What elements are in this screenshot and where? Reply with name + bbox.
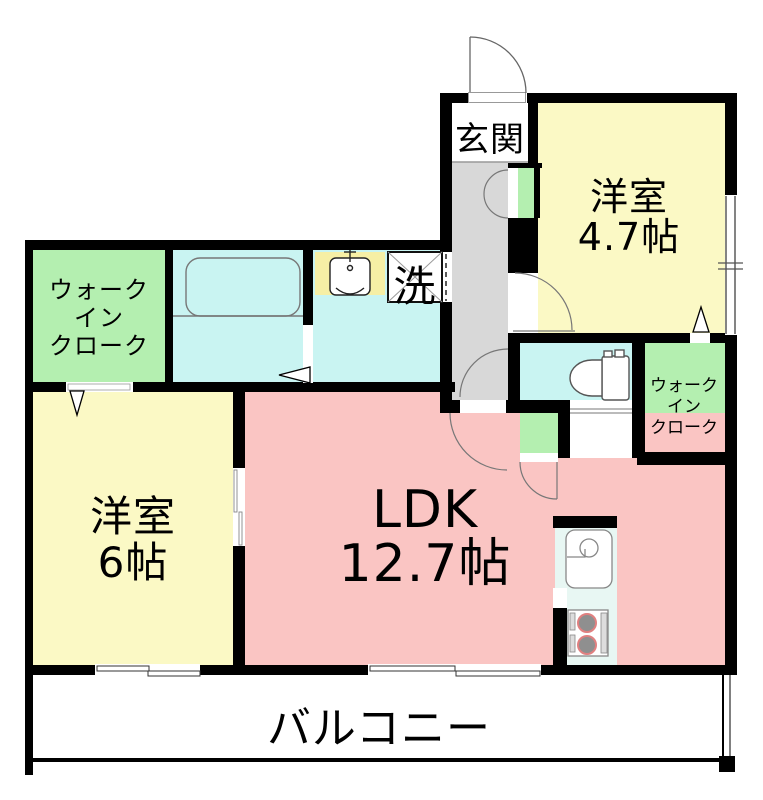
door-opening-wic-left bbox=[66, 382, 133, 392]
wall-right-upper bbox=[725, 93, 737, 195]
room-hallway bbox=[452, 162, 508, 405]
entrance-door-arc bbox=[470, 37, 526, 93]
room-toilet bbox=[520, 343, 632, 400]
label-room6-name: 洋室 bbox=[33, 494, 233, 540]
label-room47: 洋室 4.7帖 bbox=[538, 177, 720, 257]
window-ldk bbox=[368, 664, 541, 676]
washbasin-cabinet bbox=[315, 252, 385, 295]
wall-top-door-stub bbox=[440, 93, 468, 103]
wall-left-outer bbox=[25, 240, 33, 775]
wall-hall-room47 bbox=[508, 218, 538, 273]
label-balcony: バルコニー bbox=[33, 692, 725, 756]
label-ldk: LDK 12.7帖 bbox=[245, 483, 605, 591]
label-genkan: 玄関 bbox=[452, 112, 528, 161]
sliding-door-room6 bbox=[233, 468, 245, 546]
balcony-bottom-rail bbox=[33, 758, 723, 762]
wall-wic-right-bottom bbox=[637, 452, 737, 465]
door-opening-washroom bbox=[441, 252, 452, 302]
window-room47 bbox=[725, 195, 737, 335]
wall-wic-bath bbox=[165, 250, 173, 383]
wall-bath-washroom bbox=[303, 250, 313, 325]
kitchen-side-opening bbox=[553, 588, 567, 608]
label-ldk-name: LDK bbox=[245, 483, 605, 537]
label-ldk-size: 12.7帖 bbox=[245, 537, 605, 591]
balcony-corner-block bbox=[719, 756, 735, 772]
wall-kitchen-stub bbox=[553, 608, 567, 667]
label-room6: 洋室 6帖 bbox=[33, 494, 233, 586]
room-bath bbox=[173, 250, 303, 383]
door-opening-wic-right bbox=[690, 333, 710, 343]
door-opening-room47 bbox=[508, 273, 538, 333]
hall-closet-front bbox=[508, 168, 518, 218]
wall-genkan-room47 bbox=[528, 100, 538, 163]
label-wic-right: ウォーク イン クローク bbox=[639, 376, 729, 439]
label-room47-size: 4.7帖 bbox=[538, 217, 720, 257]
wall-ldk-right bbox=[725, 465, 737, 675]
wall-left-section-top bbox=[25, 240, 452, 250]
toilet-entry-nook bbox=[570, 400, 632, 458]
door-opening-bath bbox=[303, 325, 313, 383]
closet-below-toilet bbox=[520, 413, 558, 453]
wall-nook-left bbox=[558, 400, 570, 458]
floor-plan: 玄関 洋室 4.7帖 ウォーク イン クローク 洗 ウォーク イン クローク 洋… bbox=[0, 0, 763, 800]
hall-closet bbox=[518, 168, 534, 218]
entrance-threshold bbox=[468, 92, 526, 103]
window-room6 bbox=[95, 664, 200, 676]
closet3-door-strip bbox=[520, 453, 558, 462]
label-room47-name: 洋室 bbox=[538, 177, 720, 217]
label-laundry: 洗 bbox=[388, 253, 442, 314]
wall-top-right bbox=[527, 93, 737, 103]
door-opening-hall-ldk bbox=[460, 400, 506, 413]
label-wic-left: ウォーク イン クローク bbox=[33, 276, 165, 360]
label-room6-size: 6帖 bbox=[33, 540, 233, 586]
